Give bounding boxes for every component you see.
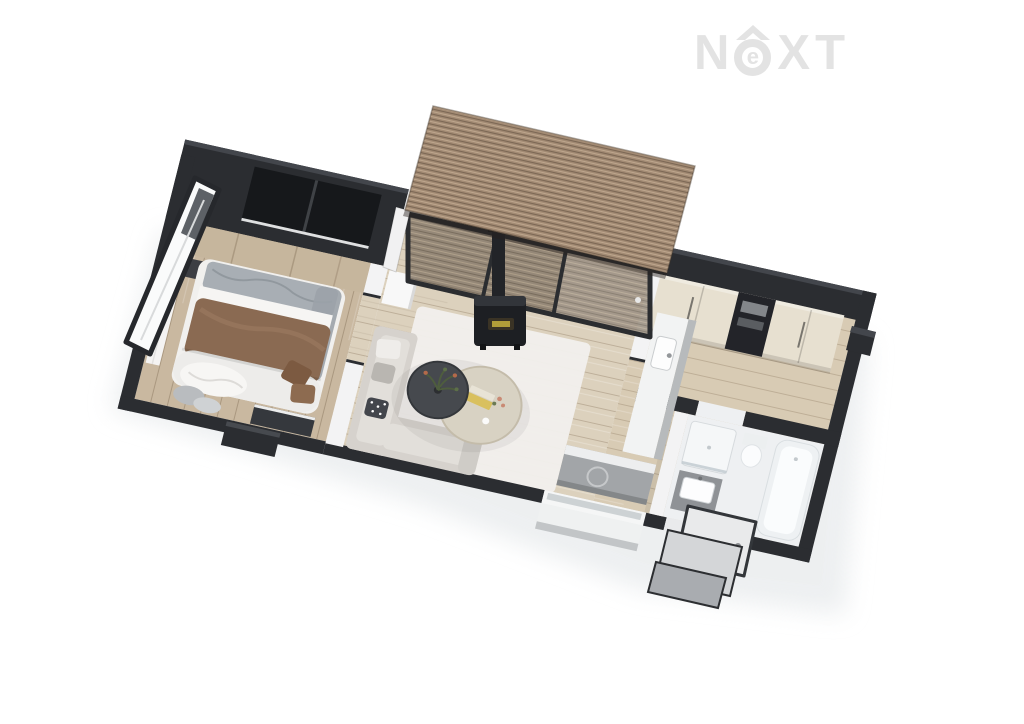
accent-pillow-2 (290, 383, 316, 404)
logo-roof-icon (736, 25, 770, 40)
sofa-pillow-white (375, 339, 401, 360)
floor-plan-render: N e X T (0, 0, 1024, 724)
logo-letter-t: T (815, 26, 844, 80)
glass-door-handle (635, 297, 641, 303)
stove-leg-2 (514, 344, 520, 350)
next-logo: N e X T (694, 24, 844, 82)
stove-top (474, 296, 526, 306)
logo-letter-x: X (777, 26, 809, 80)
logo-ring-e: e (734, 39, 771, 76)
stove-fire-glow (492, 321, 510, 327)
logo-letter-n: N (694, 26, 728, 80)
stove-leg-1 (480, 344, 486, 350)
floor-plan-svg (0, 0, 1024, 724)
logo-letter-e: e (734, 39, 771, 76)
